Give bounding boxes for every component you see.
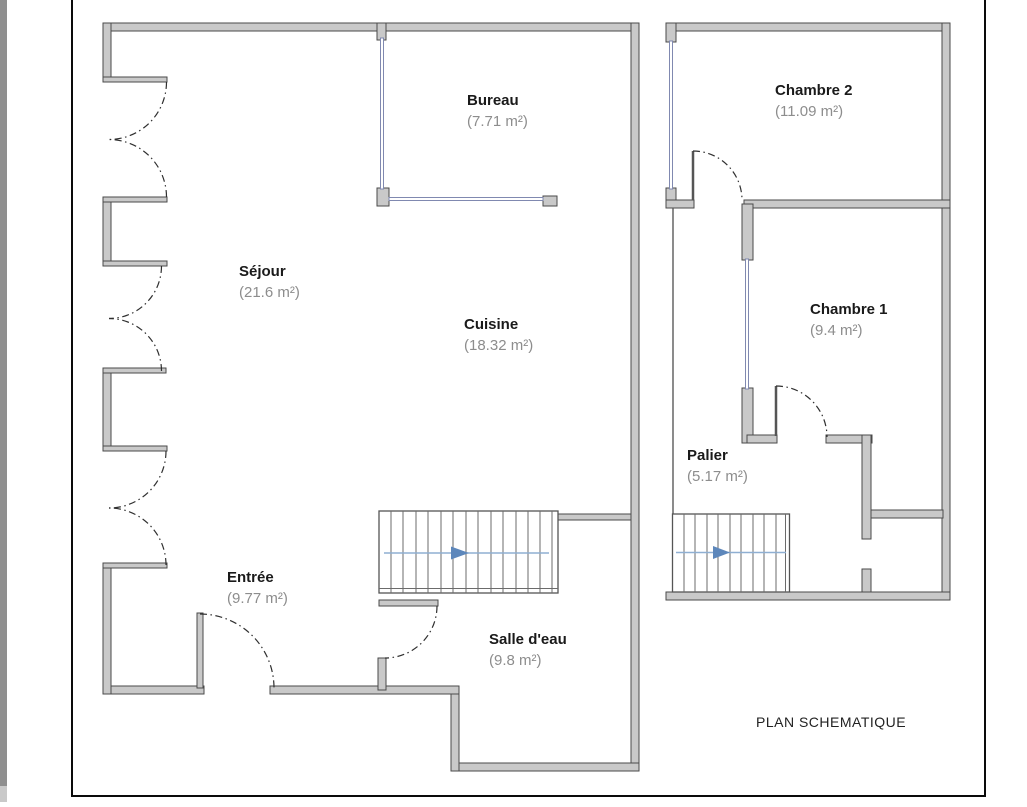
room-area: (7.71 m²) <box>467 111 528 132</box>
room-label-sejour: Séjour (21.6 m²) <box>239 261 300 303</box>
room-name: Entrée <box>227 567 288 588</box>
room-area: (9.77 m²) <box>227 588 288 609</box>
room-name: Chambre 2 <box>775 80 853 101</box>
room-area: (21.6 m²) <box>239 282 300 303</box>
upper-floor-doors <box>693 151 827 437</box>
room-area: (18.32 m²) <box>464 335 533 356</box>
room-name: Bureau <box>467 90 528 111</box>
room-area: (9.4 m²) <box>810 320 888 341</box>
room-area: (5.17 m²) <box>687 466 748 487</box>
room-label-chambre-2: Chambre 2 (11.09 m²) <box>775 80 853 122</box>
room-label-palier: Palier (5.17 m²) <box>687 445 748 487</box>
upper-floor-windows <box>670 41 749 389</box>
room-name: Chambre 1 <box>810 299 888 320</box>
room-label-entree: Entrée (9.77 m²) <box>227 567 288 609</box>
upper-floor-stairs <box>673 514 790 592</box>
room-label-chambre-1: Chambre 1 (9.4 m²) <box>810 299 888 341</box>
room-name: Palier <box>687 445 748 466</box>
plan-title: PLAN SCHEMATIQUE <box>756 714 906 730</box>
room-name: Séjour <box>239 261 300 282</box>
ground-floor-stairs <box>379 511 558 593</box>
room-area: (9.8 m²) <box>489 650 567 671</box>
room-area: (11.09 m²) <box>775 101 853 122</box>
room-name: Salle d'eau <box>489 629 567 650</box>
room-name: Cuisine <box>464 314 533 335</box>
room-label-cuisine: Cuisine (18.32 m²) <box>464 314 533 356</box>
room-label-salle-deau: Salle d'eau (9.8 m²) <box>489 629 567 671</box>
room-label-bureau: Bureau (7.71 m²) <box>467 90 528 132</box>
floor-plan-page: Bureau (7.71 m²) Séjour (21.6 m²) Cuisin… <box>0 0 1027 807</box>
